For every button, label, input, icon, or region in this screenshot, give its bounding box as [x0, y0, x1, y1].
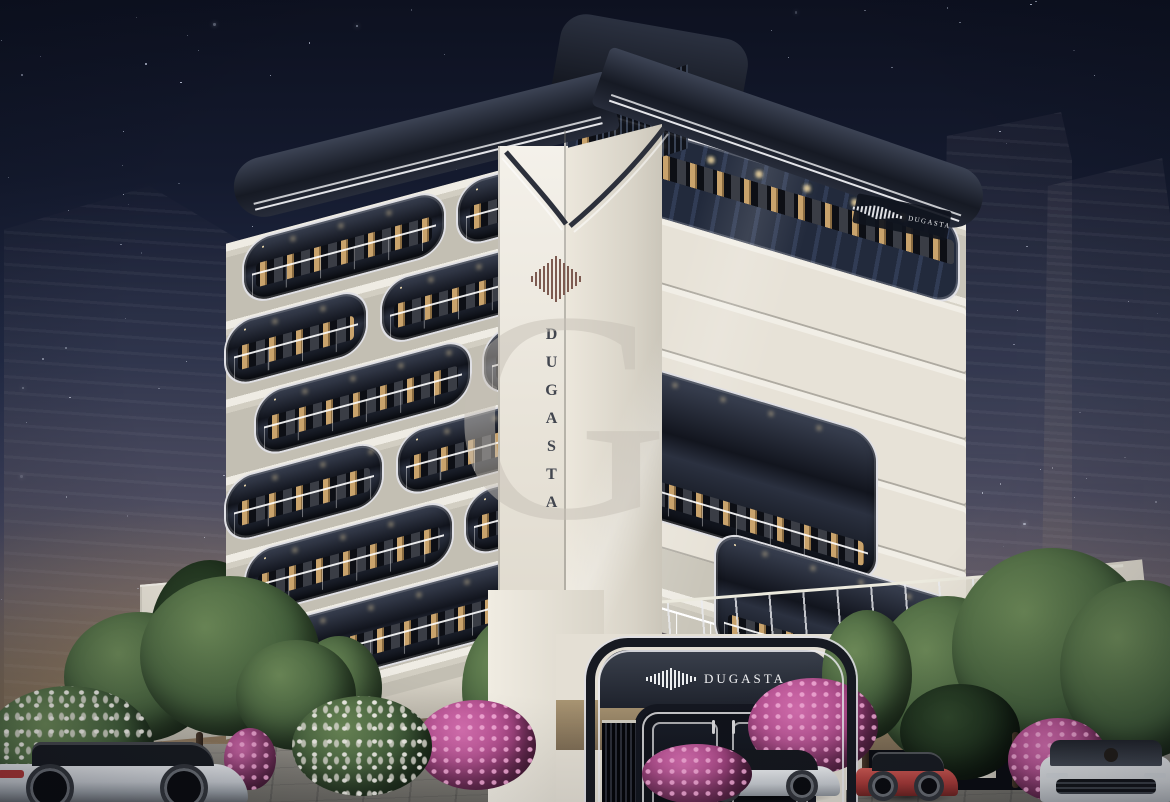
car-silver: [0, 742, 248, 802]
car-windows: [32, 742, 214, 766]
taillight: [0, 770, 24, 778]
night-render-scene: DUGASTA DUGASTA DUGASTA: [0, 0, 1170, 802]
car-red: [856, 752, 958, 796]
flower-bush-white: [292, 696, 432, 796]
flower-bush-mixed: [416, 700, 536, 790]
dugasta-logo-icon: [531, 256, 581, 302]
soffit-lights: [264, 557, 266, 560]
soffit-lights: [484, 498, 486, 501]
soffit-lights: [734, 544, 736, 547]
soffit-lights: [274, 398, 276, 401]
grille: [1056, 779, 1156, 794]
soffit-lights: [400, 286, 402, 289]
driver: [1104, 748, 1118, 762]
soffit-lights: [262, 245, 264, 248]
soffit-lights: [244, 328, 246, 331]
soffit-lights: [476, 188, 478, 191]
soffit-lights: [244, 484, 246, 487]
headlight: [1046, 773, 1068, 778]
headlight: [1144, 773, 1166, 778]
dugasta-logo-icon: [852, 201, 904, 223]
car-white-front: [1040, 740, 1170, 802]
spine-brand-name: DUGASTA: [542, 326, 560, 522]
spine-v-trim: [492, 118, 672, 248]
bougainvillea-pink: [642, 744, 752, 802]
soffit-lights: [416, 438, 418, 441]
rooftop-sign-text: DUGASTA: [907, 214, 951, 230]
